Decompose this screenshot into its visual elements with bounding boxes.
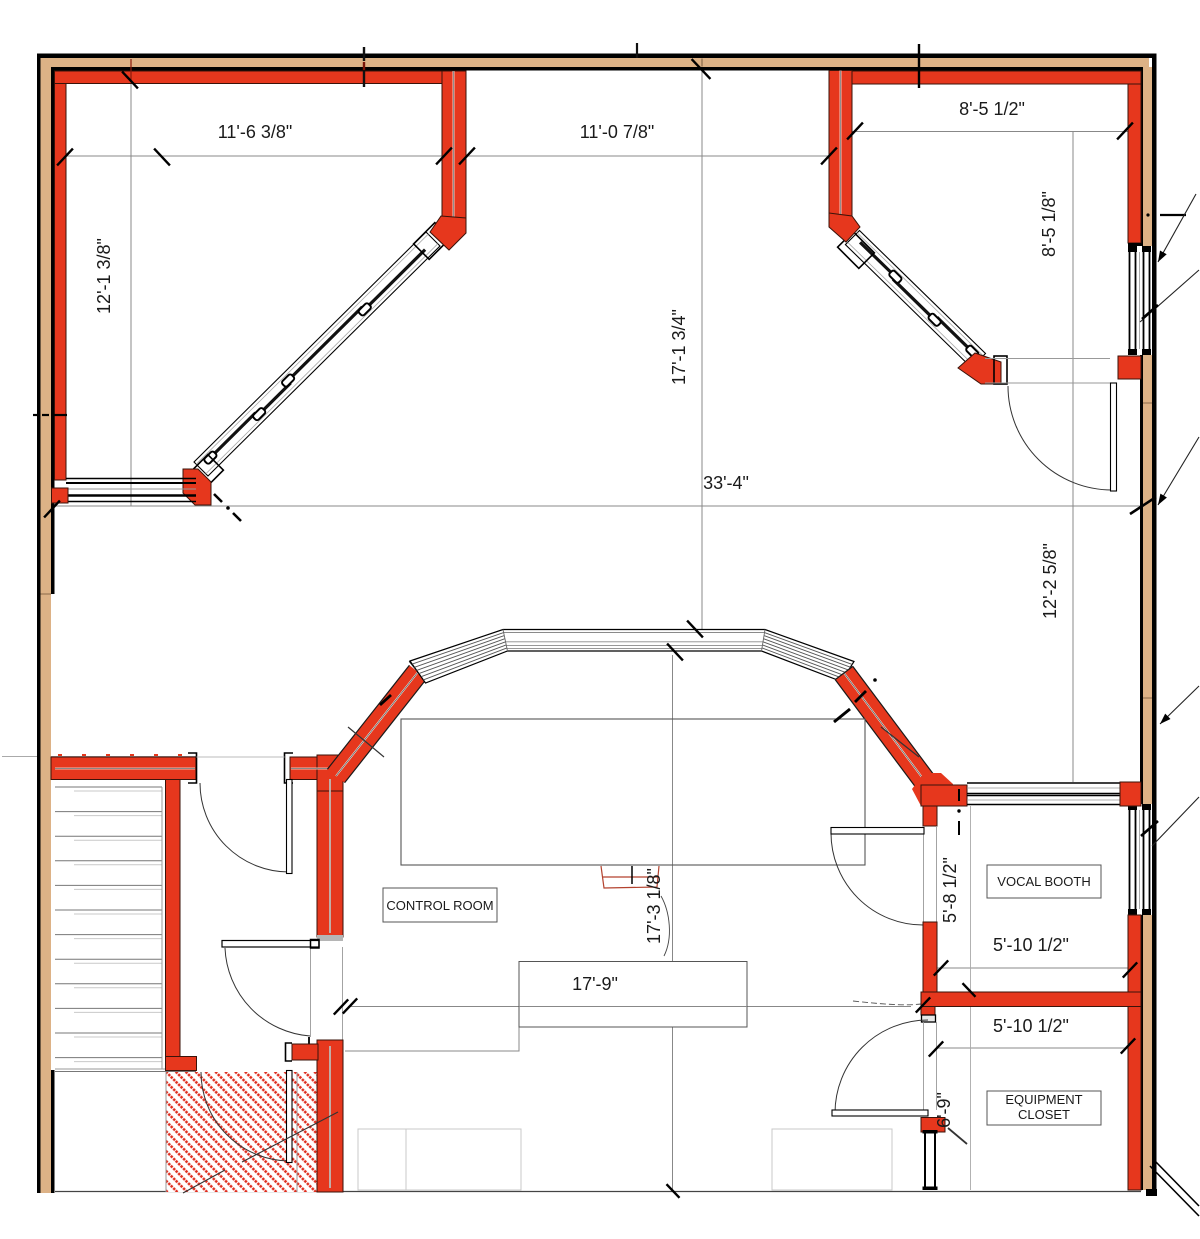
svg-text:8'-5 1/8": 8'-5 1/8" [1039, 191, 1059, 257]
svg-text:CLOSET: CLOSET [1018, 1107, 1070, 1122]
svg-text:11'-6 3/8": 11'-6 3/8" [218, 122, 293, 142]
svg-text:11'-0 7/8": 11'-0 7/8" [580, 122, 655, 142]
svg-text:5'-8 1/2": 5'-8 1/2" [940, 857, 960, 923]
svg-text:VOCAL BOOTH: VOCAL BOOTH [997, 874, 1090, 889]
svg-text:12'-2 5/8": 12'-2 5/8" [1040, 543, 1060, 619]
svg-text:33'-4": 33'-4" [703, 473, 749, 493]
svg-text:CONTROL ROOM: CONTROL ROOM [386, 898, 493, 913]
svg-text:17'-1 3/4": 17'-1 3/4" [669, 309, 689, 385]
svg-text:6'-9": 6'-9" [934, 1092, 954, 1128]
svg-text:5'-10 1/2": 5'-10 1/2" [993, 1016, 1069, 1036]
svg-text:17'-9": 17'-9" [572, 974, 618, 994]
svg-text:8'-5 1/2": 8'-5 1/2" [959, 99, 1025, 119]
svg-text:5'-10 1/2": 5'-10 1/2" [993, 935, 1069, 955]
svg-text:12'-1 3/8": 12'-1 3/8" [94, 238, 114, 314]
svg-text:17'-3 1/8": 17'-3 1/8" [644, 868, 664, 944]
svg-text:EQUIPMENT: EQUIPMENT [1005, 1092, 1082, 1107]
